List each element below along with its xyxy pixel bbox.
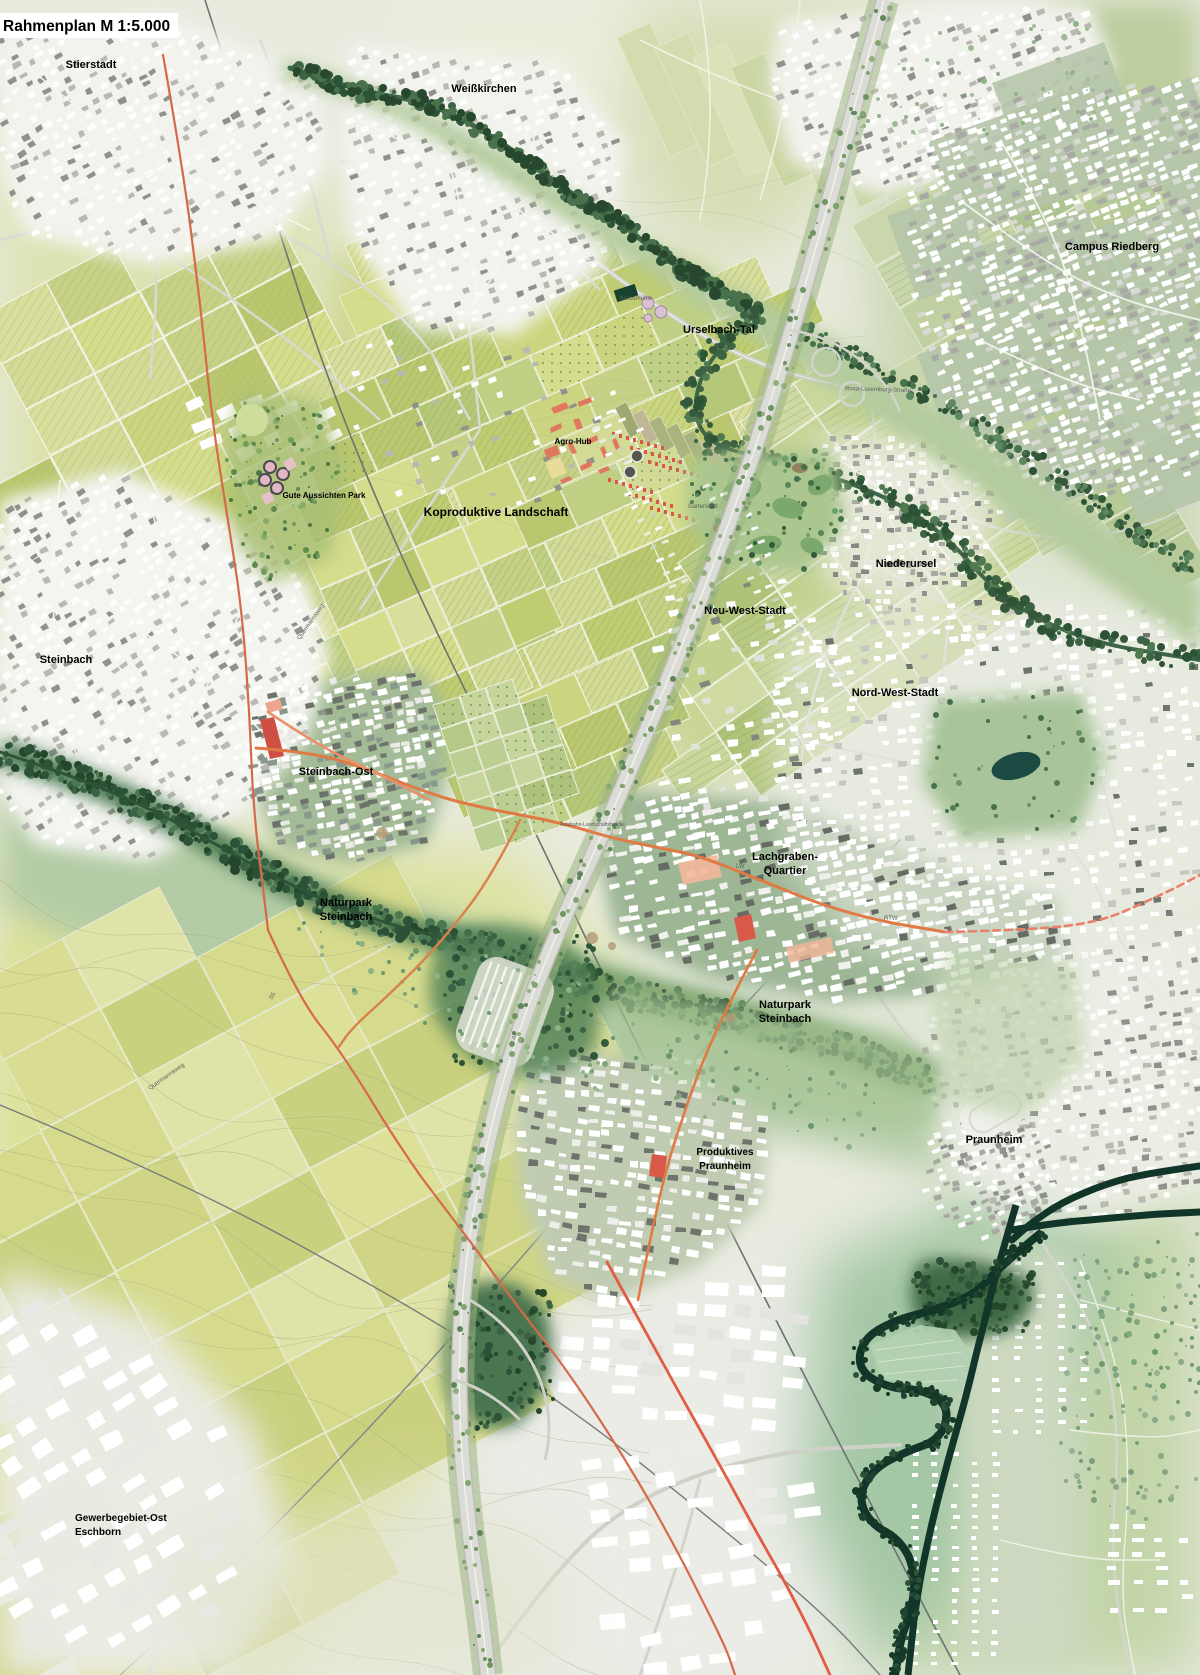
svg-text:Gartenland: Gartenland bbox=[688, 504, 718, 510]
svg-text:Agro-Hub: Agro-Hub bbox=[555, 437, 592, 446]
svg-text:LW: LW bbox=[736, 864, 745, 870]
svg-text:Urselbach-Tal: Urselbach-Tal bbox=[683, 324, 755, 336]
svg-text:Naturpark: Naturpark bbox=[759, 999, 812, 1011]
svg-text:Praunheim: Praunheim bbox=[966, 1134, 1023, 1146]
svg-text:Neu-West-Stadt: Neu-West-Stadt bbox=[704, 605, 786, 617]
svg-text:Eschborn: Eschborn bbox=[75, 1527, 121, 1538]
svg-text:Nord-West-Stadt: Nord-West-Stadt bbox=[852, 687, 939, 699]
svg-text:Steinbach-Ost: Steinbach-Ost bbox=[299, 766, 374, 778]
svg-text:Campus Riedberg: Campus Riedberg bbox=[1065, 241, 1159, 253]
svg-text:Steinbach: Steinbach bbox=[40, 654, 93, 666]
svg-text:Gewerbegebiet-Ost: Gewerbegebiet-Ost bbox=[75, 1513, 167, 1524]
svg-text:Steinbach: Steinbach bbox=[759, 1013, 812, 1025]
svg-text:Lachgraben-: Lachgraben- bbox=[752, 851, 818, 863]
svg-text:Gute Aussichten Park: Gute Aussichten Park bbox=[283, 491, 366, 500]
svg-text:Praunheim: Praunheim bbox=[699, 1161, 751, 1172]
svg-text:Niederursel: Niederursel bbox=[876, 558, 937, 570]
svg-text:Steinbach: Steinbach bbox=[320, 911, 373, 923]
svg-text:Koproduktive Landschaft: Koproduktive Landschaft bbox=[424, 505, 569, 519]
svg-text:RTW: RTW bbox=[884, 916, 898, 922]
svg-text:Naturpark: Naturpark bbox=[320, 897, 373, 909]
svg-text:Produktives: Produktives bbox=[696, 1147, 754, 1158]
svg-text:Rahmenplan M 1:5.000: Rahmenplan M 1:5.000 bbox=[3, 18, 170, 35]
svg-text:Krebsmühle: Krebsmühle bbox=[620, 296, 653, 302]
svg-text:Weißkirchen: Weißkirchen bbox=[451, 83, 516, 95]
svg-text:Quartier: Quartier bbox=[764, 865, 808, 877]
svg-text:Stierstadt: Stierstadt bbox=[66, 59, 117, 71]
svg-text:Autobahn-Landschaftsbrücke: Autobahn-Landschaftsbrücke bbox=[560, 822, 625, 828]
